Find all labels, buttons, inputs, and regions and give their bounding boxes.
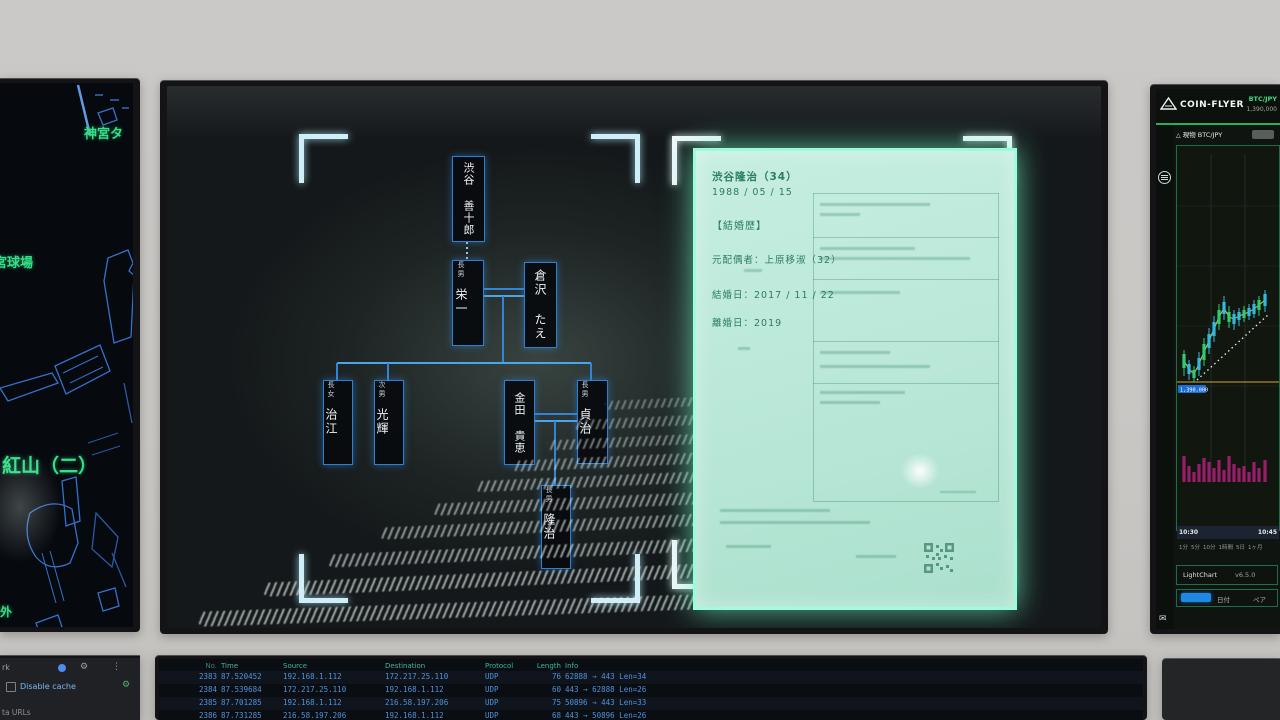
record-indicator[interactable] [58, 664, 66, 672]
packet-cell: 87.701285 [221, 698, 279, 709]
menu-icon[interactable] [1158, 171, 1171, 184]
qr-code [924, 543, 954, 573]
center-monitor: 渋谷 善十郎 長男栄一 倉沢 たえ 長女治江 次男光輝 金田 貴恵 長男貞治 長… [160, 80, 1108, 634]
tree-node-takae[interactable]: 金田 貴恵 [504, 380, 535, 465]
doc-table-line [813, 341, 999, 342]
packet-cell: 87.520452 [221, 672, 279, 683]
packet-row[interactable]: 238687.731285216.58.197.206192.168.1.112… [159, 710, 1143, 720]
packet-capture-screen: No.TimeSourceDestinationProtocolLengthIn… [159, 659, 1143, 720]
packet-cell: 2384 [173, 685, 217, 696]
engine-version: v6.5.0 [1235, 571, 1255, 579]
bottom-center-monitor: No.TimeSourceDestinationProtocolLengthIn… [155, 655, 1147, 720]
packet-cell: 68 [535, 711, 561, 720]
left-rail: ✉ ◉ [1156, 125, 1174, 629]
tree-node-harue[interactable]: 長女治江 [323, 380, 353, 465]
packet-cell: UDP [485, 698, 531, 709]
chart-subheader: △ 現物 BTC/JPY [1176, 129, 1276, 143]
doc-marriage-date: 結婚日：2017 / 11 / 22 [712, 287, 835, 301]
map-label-corner: 外 [0, 603, 12, 620]
packet-cell: 443 → 62888 Len=26 [565, 685, 785, 696]
ticker-pair: BTC/JPY [1249, 95, 1277, 103]
left-monitor: 神宮タ 宮球場 紅山（二） 外 [0, 78, 140, 632]
packet-cell: 76 [535, 672, 561, 683]
chart-footer-button[interactable] [1181, 593, 1211, 602]
bottom-right-monitor [1162, 658, 1280, 720]
packet-cell: 60 [535, 685, 561, 696]
chart-mode-button[interactable] [1252, 130, 1274, 139]
chart-pair-label: 現物 BTC/JPY [1183, 131, 1223, 139]
coinflyer-screen: COIN-FLYER BTC/JPY 1,390,000 ✉ ◉ △ 現物 BT… [1156, 89, 1280, 629]
map-screen: 神宮タ 宮球場 紅山（二） 外 [0, 83, 133, 627]
timeframe-button[interactable]: 1分 [1179, 543, 1188, 551]
tree-node-koki[interactable]: 次男光輝 [374, 380, 404, 465]
packet-cell: 87.731285 [221, 711, 279, 720]
timeframe-button[interactable]: 1ヶ月 [1248, 543, 1263, 551]
column-header[interactable]: Length [535, 662, 561, 670]
packet-cell: 216.58.197.206 [385, 698, 481, 709]
data-urls-fragment: ta URLs [2, 708, 31, 717]
scanned-document: 渋谷隆治（34） 1988 / 05 / 15 【結婚歴】 元配偶者：上原移淑（… [693, 148, 1017, 610]
doc-name-line: 渋谷隆治（34） [712, 169, 798, 184]
bottom-left-monitor: rk ⚙ ⋮ Disable cache ⚙ ta URLs [0, 655, 140, 720]
doc-table-line [813, 279, 999, 280]
packet-cell: 192.168.1.112 [385, 685, 481, 696]
doc-table-line [813, 383, 999, 384]
document-glare [894, 447, 946, 495]
column-header[interactable]: Source [283, 662, 381, 670]
timeframe-button[interactable]: 5日 [1236, 543, 1245, 551]
tree-node-tae[interactable]: 倉沢 たえ [524, 262, 557, 348]
packet-cell: 192.168.1.112 [385, 711, 481, 720]
map-outlines [0, 83, 133, 627]
doc-table-line [813, 193, 999, 194]
packet-row[interactable]: 238487.539684172.217.25.110192.168.1.112… [159, 684, 1143, 697]
packet-cell: 87.539684 [221, 685, 279, 696]
column-header[interactable]: Info [565, 662, 785, 670]
candlestick-chart[interactable]: 1,390,000 10:30 10:45 1分5分10分1時間5日1ヶ月 [1176, 145, 1280, 531]
packet-cell: 172.217.25.110 [385, 672, 481, 683]
packet-row[interactable]: 238387.520452192.168.1.112172.217.25.110… [159, 671, 1143, 684]
disable-cache-label: Disable cache [20, 682, 76, 691]
packet-cell: 192.168.1.112 [283, 672, 381, 683]
time-axis: 10:30 10:45 [1177, 526, 1279, 539]
devtools-screen: rk ⚙ ⋮ Disable cache ⚙ ta URLs [0, 658, 140, 720]
packet-cell: 192.168.1.112 [283, 698, 381, 709]
chart-engine-row: LightChart v6.5.0 [1176, 565, 1278, 585]
doc-table-line [998, 193, 999, 501]
packet-cell: 172.217.25.110 [283, 685, 381, 696]
doc-birth-date: 1988 / 05 / 15 [712, 187, 793, 198]
time-tick: 10:45 [1258, 529, 1277, 536]
packet-cell: UDP [485, 685, 531, 696]
column-header[interactable]: Time [221, 662, 279, 670]
timeframe-button[interactable]: 1時間 [1219, 543, 1234, 551]
coinflyer-header: COIN-FLYER BTC/JPY 1,390,000 [1156, 89, 1280, 125]
pair-label: ペア [1253, 594, 1266, 604]
map-label-jingu: 神宮タ [84, 123, 123, 142]
packet-cell: 75 [535, 698, 561, 709]
packet-cell: UDP [485, 672, 531, 683]
packet-table: No.TimeSourceDestinationProtocolLengthIn… [159, 659, 1143, 720]
doc-section-title: 【結婚歴】 [712, 217, 767, 232]
doc-table-line [813, 193, 814, 501]
packet-cell: 2385 [173, 698, 217, 709]
mail-icon[interactable]: ✉ [1159, 614, 1167, 624]
tab-fragment: rk [2, 663, 10, 672]
disable-cache-checkbox[interactable] [6, 682, 16, 692]
spot-triangle-icon: △ [1176, 132, 1181, 139]
svg-text:1,390,000: 1,390,000 [1180, 388, 1208, 394]
packet-cell: 62888 → 443 Len=34 [565, 672, 785, 683]
ticker-price: 1,390,000 [1246, 106, 1277, 113]
engine-name: LightChart [1183, 571, 1217, 579]
doc-table-line [813, 501, 999, 502]
packet-cell: 2383 [173, 672, 217, 683]
packet-cell: 50896 → 443 Len=33 [565, 698, 785, 709]
column-header[interactable]: Destination [385, 662, 481, 670]
chart-footer-row: 日付 ペア [1176, 589, 1278, 607]
tree-node-zenjuro[interactable]: 渋谷 善十郎 [452, 156, 485, 242]
map-label-beniyama: 紅山（二） [2, 451, 97, 478]
coinflyer-logo-icon [1160, 97, 1177, 111]
doc-table-line [813, 237, 999, 238]
more-menu-icon[interactable]: ⋮ [112, 662, 121, 672]
timeframe-button[interactable]: 10分 [1203, 543, 1216, 551]
center-screen: 渋谷 善十郎 長男栄一 倉沢 たえ 長女治江 次男光輝 金田 貴恵 長男貞治 長… [167, 86, 1101, 628]
packet-row[interactable]: 238587.701285192.168.1.112216.58.197.206… [159, 697, 1143, 710]
packet-table-header: No.TimeSourceDestinationProtocolLengthIn… [159, 659, 1143, 671]
map-label-stadium: 宮球場 [0, 252, 33, 271]
tree-node-eiichi[interactable]: 長男栄一 [452, 260, 484, 346]
column-header[interactable]: Protocol [485, 662, 531, 670]
date-label: 日付 [1217, 594, 1230, 604]
brand-name: COIN-FLYER [1180, 100, 1244, 110]
column-header[interactable]: No. [173, 662, 217, 670]
doc-divorce-date: 離婚日：2019 [712, 315, 782, 329]
packet-cell: 216.58.197.206 [283, 711, 381, 720]
time-tick: 10:30 [1179, 529, 1198, 536]
packet-cell: 2386 [173, 711, 217, 720]
chart-panel: △ 現物 BTC/JPY 1,390,000 10:30 10:45 1分5分1… [1174, 125, 1280, 629]
right-monitor: COIN-FLYER BTC/JPY 1,390,000 ✉ ◉ △ 現物 BT… [1150, 84, 1280, 634]
packet-cell: 443 → 50896 Len=26 [565, 711, 785, 720]
timeframe-row: 1分5分10分1時間5日1ヶ月 [1177, 541, 1280, 553]
packet-cell: UDP [485, 711, 531, 720]
timeframe-button[interactable]: 5分 [1191, 543, 1200, 551]
gear-icon[interactable]: ⚙ [80, 662, 88, 672]
settings-gear-icon[interactable]: ⚙ [122, 680, 130, 690]
